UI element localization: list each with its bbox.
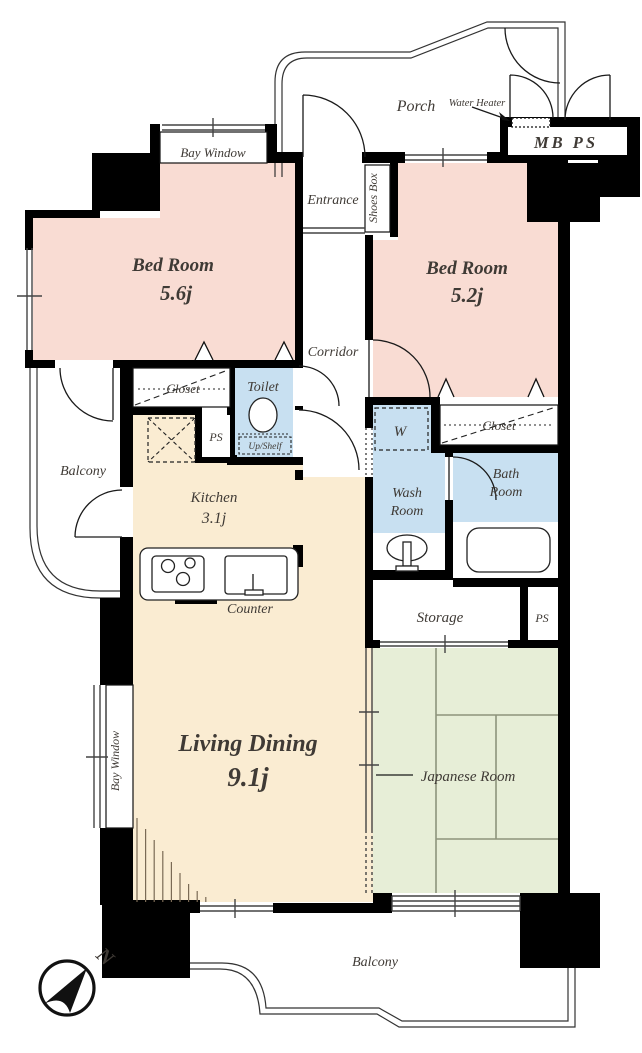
kitchen-sink <box>225 556 287 594</box>
toilet-bowl <box>249 398 277 432</box>
label-shoes-box: Shoes Box <box>366 173 380 223</box>
kitchen-counter <box>140 548 298 600</box>
label-kitchen-name: Kitchen <box>190 490 238 506</box>
water-heater-arrow <box>472 107 510 121</box>
label-porch: Porch <box>396 98 436 115</box>
compass-needle <box>44 968 87 1013</box>
label-ps-kitchen: PS <box>208 430 222 444</box>
label-balcony-bottom: Balcony <box>352 955 399 970</box>
entrance-step <box>303 228 365 233</box>
label-japanese-room: Japanese Room <box>421 769 516 785</box>
label-counter: Counter <box>227 602 273 617</box>
north-compass <box>40 961 94 1015</box>
label-entrance: Entrance <box>306 193 358 208</box>
label-kitchen-size: 3.1j <box>201 510 227 527</box>
label-water-heater: Water Heater <box>449 98 506 109</box>
label-up-shelf: Up/Shelf <box>248 441 283 452</box>
label-bedroom2-size: 5.2j <box>451 283 483 307</box>
label-living-dining-name: Living Dining <box>177 731 317 757</box>
label-corridor: Corridor <box>308 345 359 360</box>
floor-plan-drawing: Bay Window Bed Room 5.6j Porch Water Hea… <box>0 0 642 1053</box>
floor-plan: Bay Window Bed Room 5.6j Porch Water Hea… <box>0 0 642 1053</box>
balcony-left-outline <box>30 368 133 598</box>
label-bedroom2-name: Bed Room <box>425 258 508 279</box>
label-bath-room-1: Bath <box>493 467 519 482</box>
label-closet-right: Closet <box>482 418 516 433</box>
label-toilet: Toilet <box>247 380 279 395</box>
bathtub <box>467 528 550 572</box>
room-living-kitchen-floor <box>133 415 373 902</box>
label-mb-ps: MB PS <box>533 133 598 152</box>
label-storage: Storage <box>417 610 464 626</box>
label-closet-left: Closet <box>166 381 200 396</box>
label-balcony-left: Balcony <box>60 464 107 479</box>
label-ps-storage: PS <box>534 611 548 625</box>
water-heater-box <box>512 118 550 127</box>
label-wash-room-2: Room <box>390 504 424 519</box>
label-bath-room-2: Room <box>489 485 523 500</box>
label-bedroom1-name: Bed Room <box>131 255 214 276</box>
label-bedroom1-size: 5.6j <box>160 281 192 305</box>
label-bay-window-top: Bay Window <box>180 145 246 160</box>
balcony-bottom-outline <box>190 963 575 1027</box>
label-wash-room-1: Wash <box>392 486 422 501</box>
label-living-dining-size: 9.1j <box>227 762 269 792</box>
label-washer: W <box>394 424 408 440</box>
label-bay-window-left: Bay Window <box>108 731 122 791</box>
